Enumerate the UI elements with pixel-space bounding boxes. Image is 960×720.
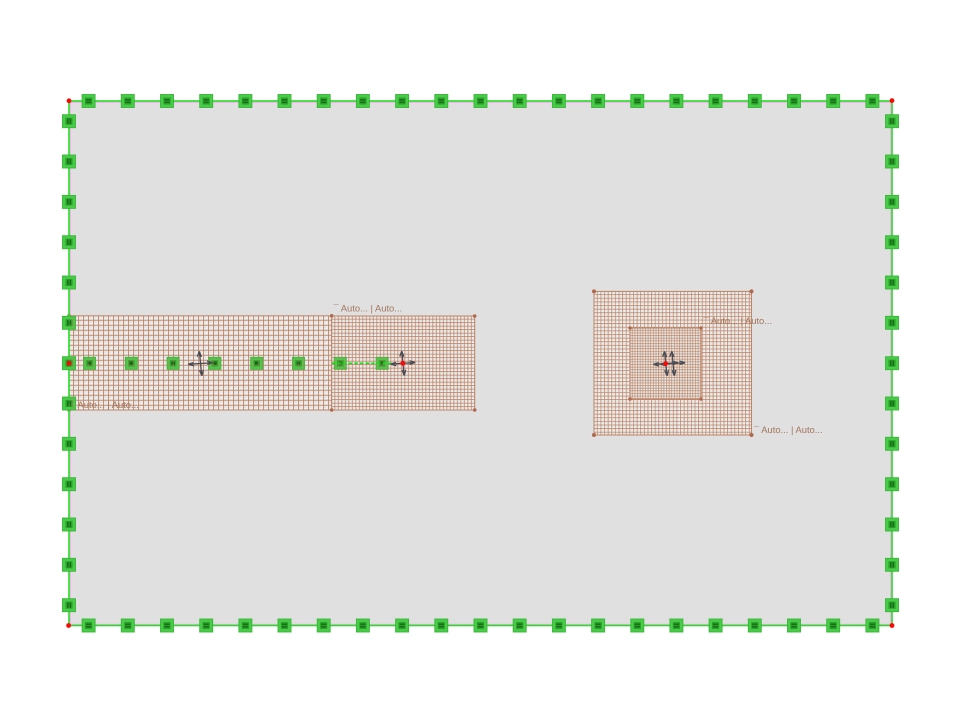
- svg-text:Auto... | Auto...: Auto... | Auto...: [78, 399, 139, 410]
- svg-text:¯ Auto... | Auto...: ¯ Auto... | Auto...: [333, 303, 403, 314]
- svg-text:¯ Auto... | Auto...: ¯ Auto... | Auto...: [703, 315, 773, 326]
- svg-text:¯ Auto... | Auto...: ¯ Auto... | Auto...: [753, 424, 823, 435]
